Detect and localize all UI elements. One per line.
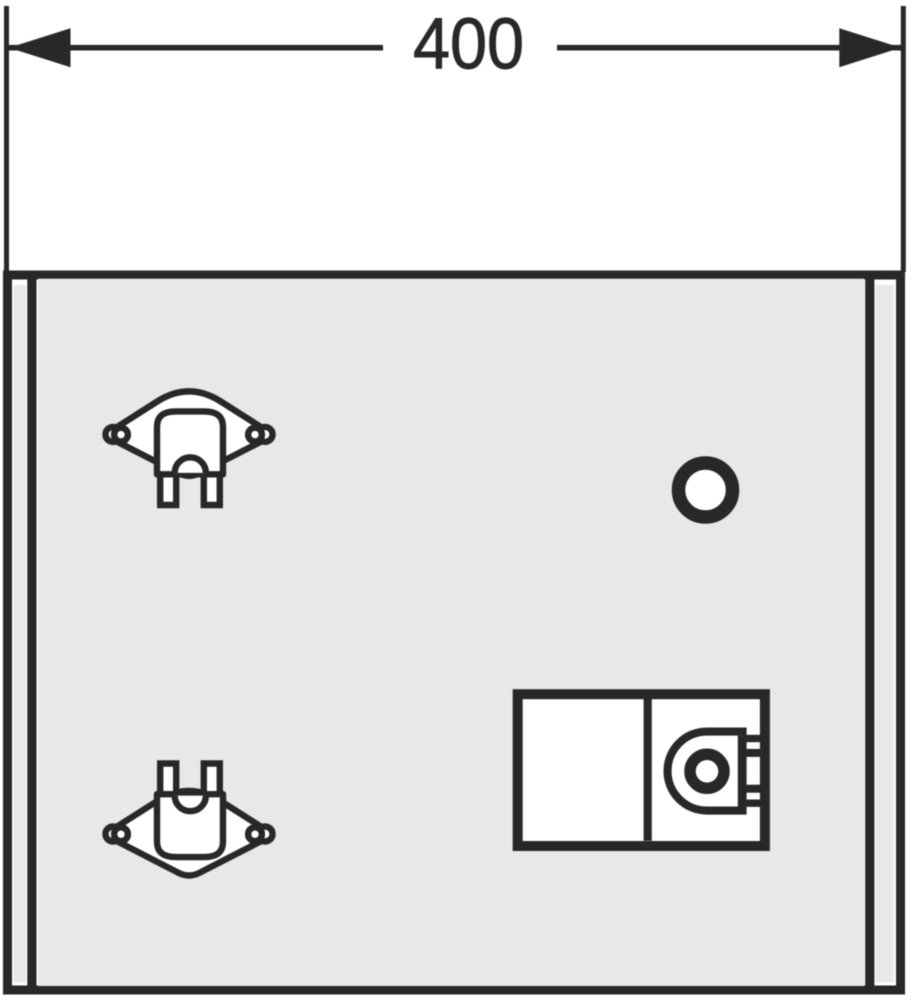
svg-text:400: 400 (413, 3, 524, 84)
